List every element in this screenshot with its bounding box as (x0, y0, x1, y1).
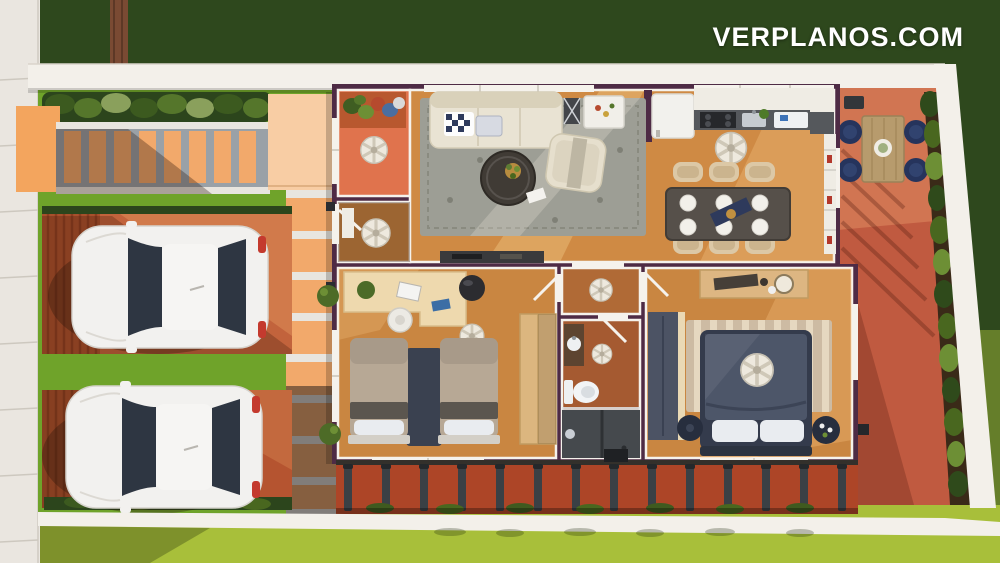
potted-plant-2 (319, 423, 341, 445)
wood-gate (110, 0, 128, 66)
vanity (564, 324, 584, 366)
patio-chair (904, 158, 928, 182)
nightstand-left (677, 415, 703, 441)
nightstand-right (812, 416, 840, 444)
kitchen-plant (759, 109, 769, 119)
coffee-table (481, 151, 535, 205)
ac-unit (604, 449, 628, 462)
hall-ceiling-fan (590, 279, 612, 301)
bedroom1-rug (406, 348, 442, 446)
front-walkway (56, 122, 270, 194)
dining-ceiling-fan (716, 133, 747, 164)
outdoor-table (862, 116, 904, 182)
office-chair (388, 308, 412, 332)
x-side-table (564, 98, 580, 124)
cooktop (700, 112, 736, 128)
front-hedge (42, 92, 272, 122)
bean-bag (459, 275, 485, 301)
car-2 (42, 381, 262, 514)
bar-shelf (824, 134, 836, 254)
dining-chair (745, 162, 775, 182)
dining-chair (709, 162, 739, 182)
wall-light-1 (326, 202, 335, 211)
entry-pad (16, 106, 60, 192)
porch-ceiling-fan (361, 137, 388, 164)
wardrobe-1 (520, 314, 556, 444)
patio-wall-light (858, 424, 869, 435)
back-fence (336, 460, 858, 514)
floor-plan-render: VERPLANOS.COM (0, 0, 1000, 563)
dishwasher (774, 112, 808, 128)
dining-table (666, 188, 790, 240)
watermark-text: VERPLANOS.COM (712, 22, 964, 53)
shower (562, 407, 640, 458)
toilet (564, 380, 599, 404)
patio-chair (838, 120, 862, 144)
grill (844, 96, 864, 109)
entry-ceiling-fan (362, 219, 390, 247)
floor-plan-scene (0, 0, 1000, 563)
bathroom-ceiling-fan (592, 344, 612, 364)
car-1 (48, 221, 268, 354)
lounge-chair (544, 132, 607, 193)
refrigerator (652, 94, 694, 138)
master-ceiling-fan (741, 354, 773, 386)
potted-plant-1 (317, 285, 339, 307)
master-bed (700, 330, 812, 456)
tv-console (440, 251, 544, 263)
bed-2 (438, 338, 500, 444)
entry-console (342, 208, 354, 238)
side-table (584, 96, 624, 128)
porch-planter (340, 92, 406, 128)
bed-1 (348, 338, 410, 444)
dresser (700, 270, 808, 298)
dining-chair (673, 162, 703, 182)
desk-plant (357, 281, 375, 299)
sofa (430, 92, 562, 148)
patio-chair (838, 158, 862, 182)
checkered-pillow (444, 112, 474, 136)
